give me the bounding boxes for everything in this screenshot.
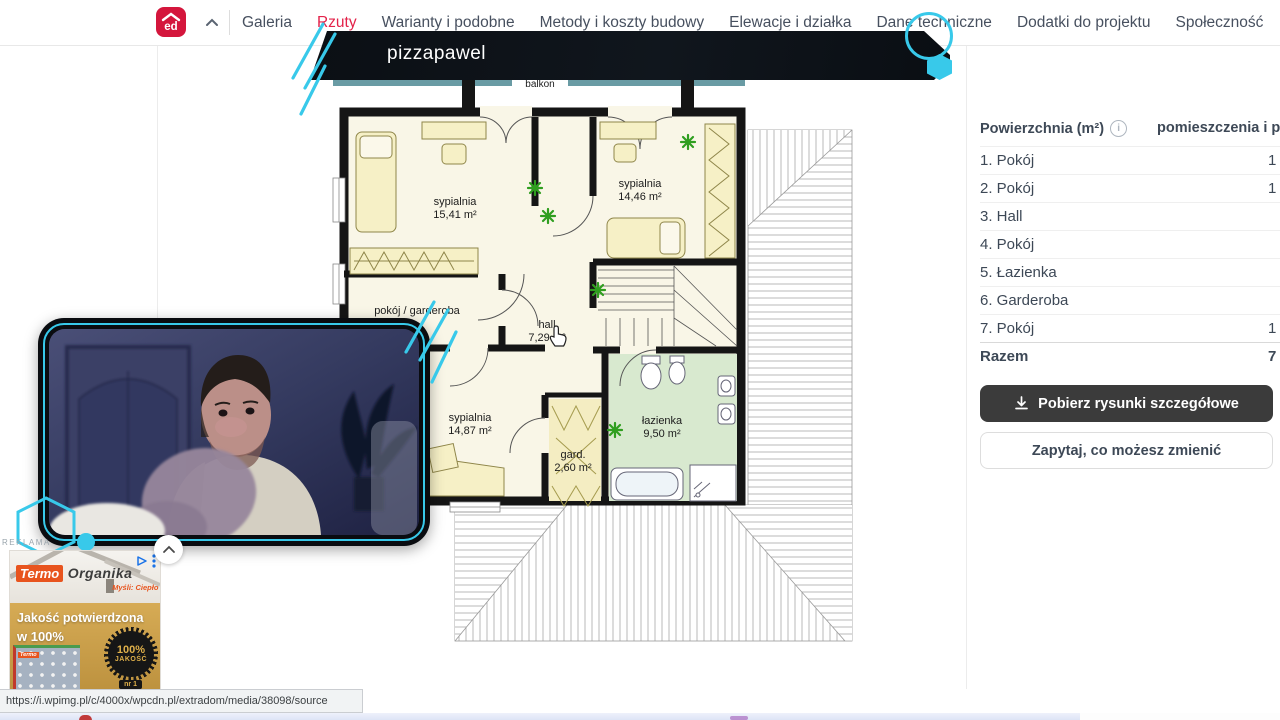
- sidebar-divider: [966, 45, 967, 689]
- room-area: 14,87 m²: [448, 425, 492, 437]
- ad-collapse-button[interactable]: [154, 535, 183, 564]
- room-label: sypialnia: [619, 178, 663, 190]
- roof-hatch-bottom: [455, 505, 852, 641]
- balcony-label: balkon: [525, 79, 554, 90]
- hand-cursor: [548, 324, 568, 348]
- table-row[interactable]: 7. Pokój 1: [980, 314, 1280, 342]
- advertisement[interactable]: Termo Organika Myśli: Ciepło Jakość potw…: [10, 551, 160, 690]
- product-package: Termo: [13, 645, 80, 690]
- ask-button-label: Zapytaj, co możesz zmienić: [1032, 443, 1221, 459]
- extradom-logo[interactable]: ed: [156, 7, 186, 37]
- tab-spolecznosc[interactable]: Społeczność: [1176, 14, 1264, 32]
- bottom-page-strip: [0, 713, 1280, 720]
- table-row[interactable]: 3. Hall: [980, 202, 1280, 230]
- nav-divider: [229, 10, 230, 35]
- rooms-header-label: pomieszczenia i pod: [1157, 120, 1280, 136]
- table-row[interactable]: 5. Łazienka: [980, 258, 1280, 286]
- annotation-circle: [905, 12, 953, 60]
- streamer-name: pizzapawel: [387, 43, 486, 65]
- status-url-tooltip: https://i.wpimg.pl/c/4000x/wpcdn.pl/extr…: [0, 689, 363, 713]
- total-value: 7: [1268, 348, 1276, 365]
- area-header-label: Powierzchnia (m²): [980, 121, 1104, 137]
- tab-elewacje[interactable]: Elewacje i działka: [729, 14, 851, 32]
- download-drawings-button[interactable]: Pobierz rysunki szczegółowe: [980, 385, 1273, 422]
- row-label: 2. Pokój: [980, 180, 1034, 197]
- brand-organika: Organika: [68, 565, 133, 581]
- row-label: 5. Łazienka: [980, 264, 1057, 281]
- table-row[interactable]: 2. Pokój 1: [980, 174, 1280, 202]
- info-icon[interactable]: i: [1110, 120, 1127, 137]
- adchoices-icon: [136, 555, 148, 567]
- room-area: 2,60 m²: [554, 462, 592, 474]
- row-value: 1: [1268, 152, 1276, 169]
- download-icon: [1014, 396, 1029, 411]
- area-table: Powierzchnia (m²) i pomieszczenia i pod …: [980, 112, 1280, 370]
- svg-text:ed: ed: [164, 21, 177, 33]
- table-header: Powierzchnia (m²) i pomieszczenia i pod: [980, 112, 1280, 146]
- row-label: 6. Garderoba: [980, 292, 1068, 309]
- house-logo-icon: ed: [159, 10, 183, 34]
- ask-change-button[interactable]: Zapytaj, co możesz zmienić: [980, 432, 1273, 469]
- webcam-video: [49, 329, 419, 535]
- room-area: 15,41 m²: [433, 209, 477, 221]
- badge-percent: 100%: [117, 645, 145, 657]
- room-area: 9,50 m²: [643, 428, 681, 440]
- package-label: Termo: [18, 652, 39, 658]
- total-label: Razem: [980, 348, 1028, 365]
- row-label: 4. Pokój: [980, 236, 1034, 253]
- webcam-accent-lines: [398, 300, 460, 385]
- room-area: 14,46 m²: [618, 191, 662, 203]
- room-label: sypialnia: [449, 412, 493, 424]
- status-url-text: https://i.wpimg.pl/c/4000x/wpcdn.pl/extr…: [6, 695, 328, 707]
- badge-quality: JAKOŚĆ: [115, 656, 147, 663]
- quality-badge: 100% JAKOŚĆ: [104, 627, 158, 681]
- row-label: 7. Pokój: [980, 320, 1034, 337]
- room-label: gard.: [560, 449, 585, 461]
- table-total-row: Razem 7: [980, 342, 1280, 370]
- row-value: 1: [1268, 320, 1276, 337]
- row-label: 3. Hall: [980, 208, 1023, 225]
- download-button-label: Pobierz rysunki szczegółowe: [1038, 396, 1239, 412]
- tab-metody-koszty[interactable]: Metody i koszty budowy: [540, 14, 705, 32]
- ad-photo-area: Termo Organika Myśli: Ciepło: [10, 551, 160, 603]
- bottom-strip-purple-mark: [730, 716, 748, 720]
- room-label: sypialnia: [434, 196, 478, 208]
- chevron-up-icon: [204, 15, 220, 31]
- ad-body: Jakość potwierdzona w 100% 100% JAKOŚĆ n…: [10, 603, 160, 690]
- table-row[interactable]: 6. Garderoba: [980, 286, 1280, 314]
- webcam-hexagon-accent: [12, 496, 102, 558]
- row-value: 1: [1268, 180, 1276, 197]
- brand-termo: Termo: [16, 565, 63, 582]
- table-row[interactable]: 4. Pokój: [980, 230, 1280, 258]
- tab-dodatki[interactable]: Dodatki do projektu: [1017, 14, 1151, 32]
- tab-warianty[interactable]: Warianty i podobne: [382, 14, 515, 32]
- badge-nr1: nr 1: [119, 680, 142, 689]
- ad-section-label: REKLAMA: [2, 538, 51, 547]
- ad-headline-2: w 100%: [17, 629, 64, 644]
- table-row[interactable]: 1. Pokój 1: [980, 146, 1280, 174]
- ad-headline-1: Jakość potwierdzona: [17, 611, 143, 625]
- stream-banner: pizzapawel: [310, 31, 950, 80]
- roof-hatch-right: [748, 130, 852, 505]
- ad-brand: Termo Organika Myśli: Ciepło: [16, 565, 132, 583]
- bottom-strip-panel: [1080, 713, 1280, 720]
- screen: ed Galeria Rzuty Warianty i podobne Meto…: [0, 0, 1280, 720]
- collapse-nav-button[interactable]: [200, 11, 224, 35]
- row-label: 1. Pokój: [980, 152, 1034, 169]
- brand-tagline: Myśli: Ciepło: [112, 583, 158, 592]
- banner-accent-lines: [285, 22, 350, 117]
- chevron-up-icon: [162, 543, 176, 557]
- bottom-strip-red-dot: [79, 715, 92, 720]
- ad-choices[interactable]: [136, 554, 156, 568]
- room-label: łazienka: [642, 415, 683, 427]
